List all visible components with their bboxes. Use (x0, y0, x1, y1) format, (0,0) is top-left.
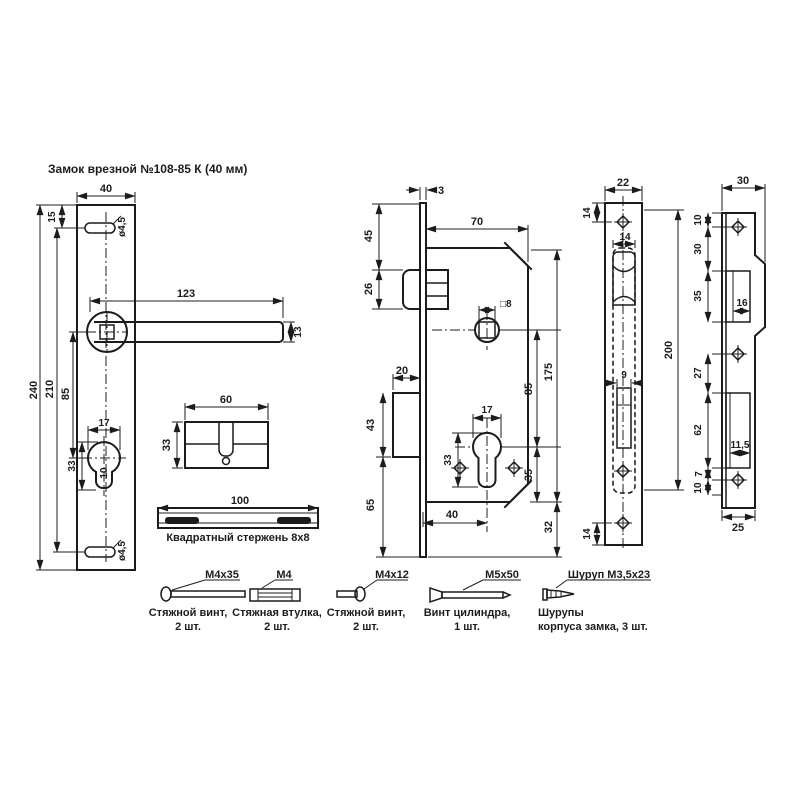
dim-strike-latch-width: 16 (736, 298, 748, 309)
dim-plate-width: 40 (100, 183, 112, 195)
fastener-5-caption: Шурупы (538, 607, 584, 619)
top-slot-hole (85, 223, 115, 233)
dim-plate-top-offset: 15 (47, 211, 58, 223)
dim-body-width: 70 (471, 216, 483, 228)
dim-spindle-length: 100 (231, 495, 249, 507)
dim-strike-gap: 7 (694, 471, 705, 477)
strike-screw-bottom (729, 471, 747, 489)
dim-faceplate-thickness: 3 (438, 185, 444, 197)
dim-faceplate-width: 22 (617, 177, 629, 189)
fastener-tie-screw-m4x35: М4х35 Стяжной винт, 2 шт. (149, 569, 245, 633)
deadbolt (393, 393, 420, 457)
dim-bolt-to-bottom: 65 (365, 499, 377, 511)
body-screw-hole-right (505, 459, 523, 477)
fastener-2-caption: Стяжная втулка, (232, 607, 322, 619)
fastener-cylinder-screw-m5x50: М5х50 Винт цилиндра, 1 шт. (424, 569, 521, 633)
bottom-slot-diameter-label: ø4,5 (117, 541, 128, 561)
dim-plate-height: 240 (28, 381, 40, 399)
fastener-3-label: М4х12 (375, 569, 409, 581)
dim-plate-hole-span: 210 (44, 380, 56, 398)
screw-shaft (442, 592, 503, 598)
cylinder-key-channel (219, 422, 233, 456)
dim-strike-latch-height: 35 (693, 290, 704, 302)
cylinder-detail-view: 60 33 (161, 394, 268, 468)
dim-bolt-opening-width: 9 (621, 370, 627, 381)
drawing-sheet: Замок врезной №108-85 К (40 мм) ø4,5 ø4,… (0, 0, 800, 800)
dim-strike-screw-bottom: 10 (693, 482, 704, 494)
fastener-5-qty: корпуса замка, 3 шт. (538, 621, 648, 633)
screw-head (430, 588, 442, 602)
bottom-slot-hole (85, 547, 115, 557)
fastener-wood-screw-m3-5x23: Шуруп М3,5х23 Шурупы корпуса замка, 3 шт… (538, 569, 651, 633)
dim-cylinder-width: 60 (220, 394, 232, 406)
dim-top-to-latch: 45 (363, 230, 375, 242)
fastener-4-qty: 1 шт. (454, 621, 480, 633)
dim-lever-length: 123 (177, 288, 195, 300)
dim-strike-width-bottom: 25 (732, 522, 744, 534)
dim-bolt-height: 43 (365, 419, 377, 431)
dim-spindle-square: □8 (500, 299, 512, 310)
dim-strike-bolt-width: 11,5 (731, 440, 750, 451)
dim-body-cyl-height: 33 (443, 454, 454, 466)
lock-body-view: 3 □8 (363, 185, 562, 557)
spindle-caption: Квадратный стержень 8х8 (166, 532, 309, 544)
screw-shaft (337, 591, 357, 597)
handle-plate-view: ø4,5 ø4,5 40 15 240 210 85 (28, 183, 304, 570)
dim-bolt-throw: 20 (396, 365, 408, 377)
dim-screw-top: 14 (582, 207, 593, 219)
strike-plate-view: 16 11,5 30 25 10 30 35 27 62 7 10 (693, 175, 765, 534)
top-slot-diameter-label: ø4,5 (117, 217, 128, 237)
dim-strike-screw-to-bolt: 27 (693, 367, 704, 379)
fastener-2-label: М4 (276, 569, 292, 581)
dim-body-cyl-width: 17 (481, 405, 493, 416)
faceplate-screw-top (614, 213, 632, 231)
fastener-4-caption: Винт цилиндра, (424, 607, 511, 619)
dim-lever-width: 13 (293, 326, 304, 338)
dim-backset: 40 (446, 509, 458, 521)
fastener-1-qty: 2 шт. (175, 621, 201, 633)
dim-strike-width-top: 30 (737, 175, 749, 187)
deadbolt-opening (617, 388, 631, 448)
dim-body-height: 175 (543, 363, 555, 381)
strike-screw-middle (729, 345, 747, 363)
dim-latch-height: 26 (363, 283, 375, 295)
screw-head (161, 587, 171, 601)
dim-body-edge-width: 14 (619, 232, 631, 243)
faceplate-screw-middle (614, 462, 632, 480)
drawing-title: Замок врезной №108-85 К (40 мм) (48, 162, 247, 176)
dim-faceplate-length: 200 (663, 341, 675, 359)
dim-strike-screw-top: 10 (693, 214, 704, 226)
strike-latch-opening (726, 271, 750, 322)
dim-plate-cyl-slot: 10 (99, 467, 110, 479)
fastener-1-caption: Стяжной винт, (149, 607, 228, 619)
dim-strike-to-latch: 30 (693, 243, 704, 255)
cylinder-body (185, 422, 268, 468)
fastener-1-label: М4х35 (205, 569, 239, 581)
dim-plate-centers: 85 (60, 388, 72, 400)
faceplate-screw-bottom (614, 514, 632, 532)
fastener-3-caption: Стяжной винт, (327, 607, 406, 619)
dim-cylinder-height: 33 (161, 439, 173, 451)
strike-screw-top (729, 218, 747, 236)
spindle-detail-view: 100 Квадратный стержень 8х8 (158, 495, 318, 544)
faceplate-view: 22 14 14 9 (582, 177, 684, 551)
cylinder-pin-hole (223, 458, 230, 465)
lock-technical-drawing: Замок врезной №108-85 К (40 мм) ø4,5 ø4,… (0, 0, 800, 800)
dim-body-centers: 85 (523, 383, 535, 395)
strike-plate-outline (722, 213, 765, 508)
dim-plate-cyl-width: 17 (98, 418, 110, 429)
dim-cyl-to-bottom: 35 (523, 469, 535, 481)
fastener-5-label: Шуруп М3,5х23 (568, 569, 650, 581)
dim-bottom-margin: 32 (543, 521, 555, 533)
fastener-2-qty: 2 шт. (264, 621, 290, 633)
fastener-tie-screw-m4x12: М4х12 Стяжной винт, 2 шт. (327, 569, 409, 633)
latch-bolt (403, 270, 420, 309)
dim-strike-bolt-height: 62 (693, 424, 704, 436)
screw-shaft (171, 591, 245, 597)
dim-plate-cyl-height: 33 (67, 460, 78, 472)
fastener-tie-sleeve-m4: М4 Стяжная втулка, 2 шт. (232, 569, 322, 633)
dim-screw-bottom: 14 (582, 528, 593, 540)
fastener-4-label: М5х50 (485, 569, 519, 581)
fastener-3-qty: 2 шт. (353, 621, 379, 633)
